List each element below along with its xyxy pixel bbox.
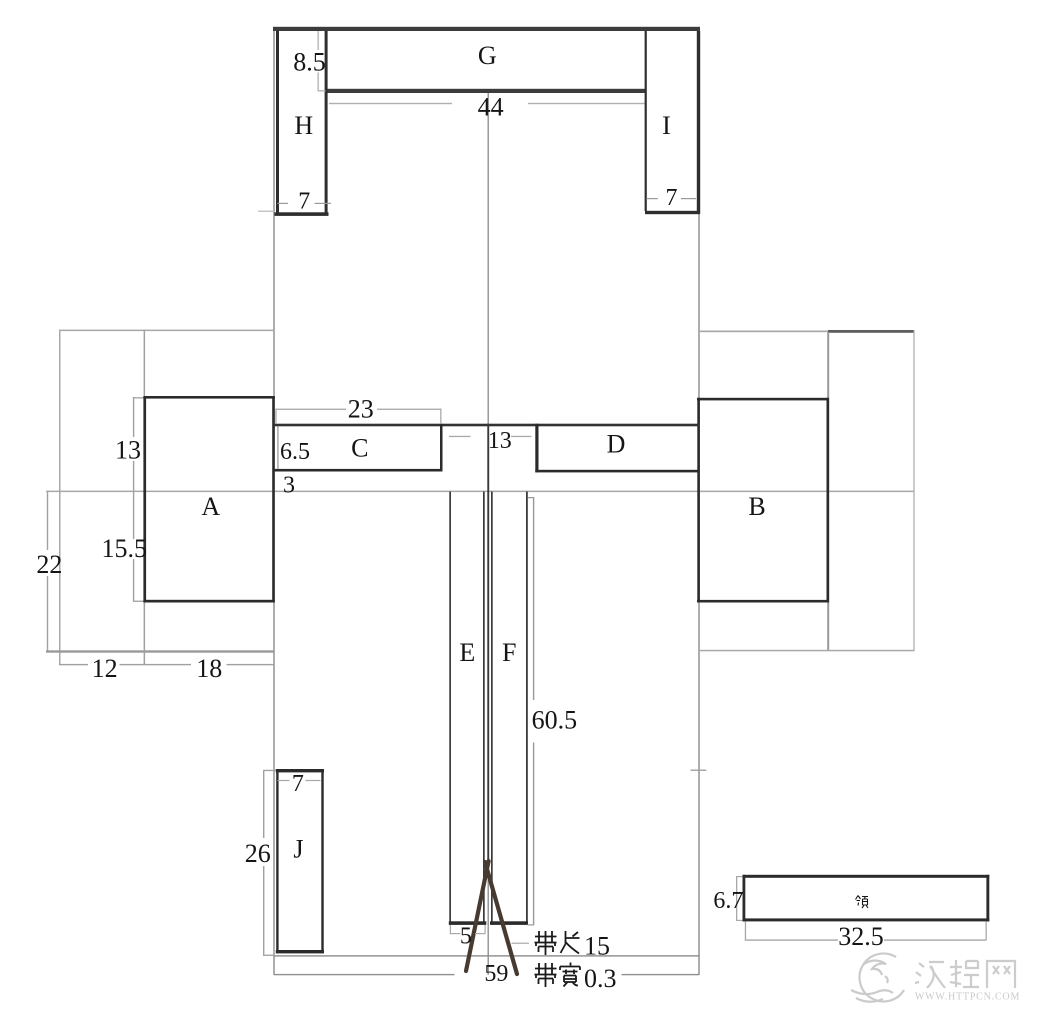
svg-text:C: C (351, 434, 368, 463)
svg-text:5: 5 (460, 924, 472, 950)
svg-text:J: J (293, 834, 303, 863)
svg-text:15.5: 15.5 (102, 534, 148, 563)
svg-text:I: I (662, 111, 671, 140)
svg-text:18: 18 (196, 654, 222, 683)
svg-text:13: 13 (115, 436, 141, 465)
svg-text:6.7: 6.7 (713, 888, 743, 914)
svg-text:26: 26 (245, 839, 271, 868)
svg-text:H: H (294, 111, 313, 140)
svg-text:6.5: 6.5 (280, 439, 310, 465)
svg-text:13: 13 (488, 428, 512, 454)
svg-text:22: 22 (36, 550, 62, 579)
svg-text:8.5: 8.5 (293, 48, 326, 77)
svg-text:B: B (748, 492, 765, 521)
svg-text:7: 7 (292, 771, 304, 797)
svg-text:D: D (607, 429, 626, 458)
svg-text:15: 15 (584, 932, 610, 961)
svg-text:A: A (201, 492, 220, 521)
svg-text:32.5: 32.5 (838, 922, 884, 951)
svg-text:E: E (459, 638, 475, 667)
svg-text:23: 23 (348, 395, 374, 424)
svg-text:WWW.HTTPCN.COM: WWW.HTTPCN.COM (915, 992, 1020, 1003)
svg-text:3: 3 (283, 473, 295, 499)
svg-text:59: 59 (484, 961, 508, 987)
svg-text:G: G (478, 41, 497, 70)
svg-text:F: F (502, 638, 516, 667)
svg-text:7: 7 (666, 185, 678, 211)
svg-text:7: 7 (298, 189, 310, 215)
svg-text:12: 12 (92, 654, 118, 683)
svg-text:0.3: 0.3 (584, 964, 617, 993)
svg-text:44: 44 (478, 93, 504, 122)
svg-text:60.5: 60.5 (532, 706, 578, 735)
